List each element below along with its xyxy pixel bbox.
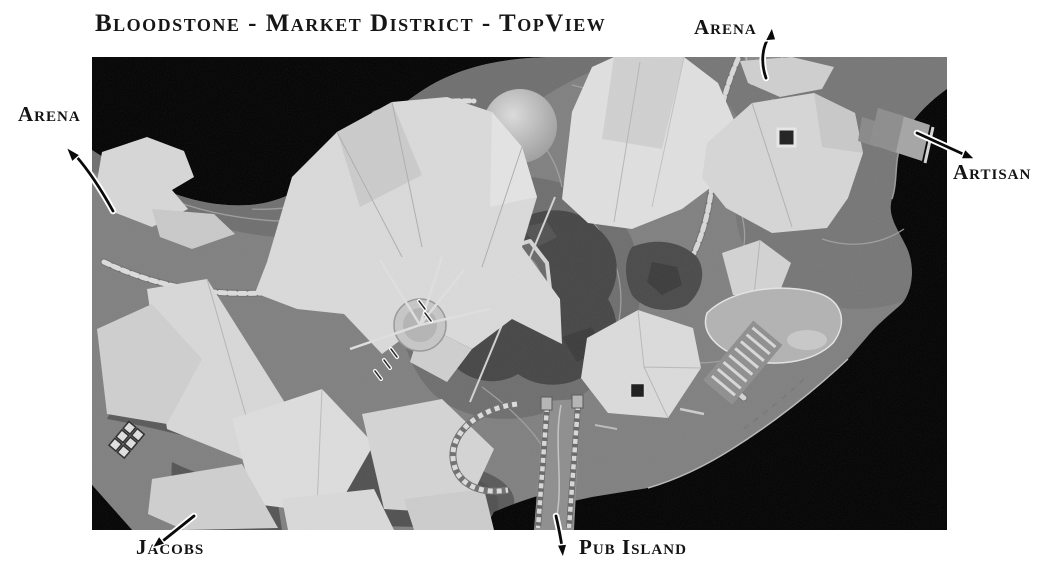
map-render bbox=[92, 57, 947, 530]
map-art bbox=[92, 57, 947, 530]
label-arena-top: Arena bbox=[694, 15, 757, 40]
label-jacobs: Jacobs bbox=[136, 535, 204, 560]
page-title: Bloodstone - Market District - TopView bbox=[95, 10, 606, 38]
page: Bloodstone - Market District - TopView bbox=[0, 0, 1040, 584]
label-artisan: Artisan bbox=[953, 160, 1031, 185]
label-arena-left: Arena bbox=[18, 102, 81, 127]
label-pub-island: Pub Island bbox=[579, 535, 687, 560]
